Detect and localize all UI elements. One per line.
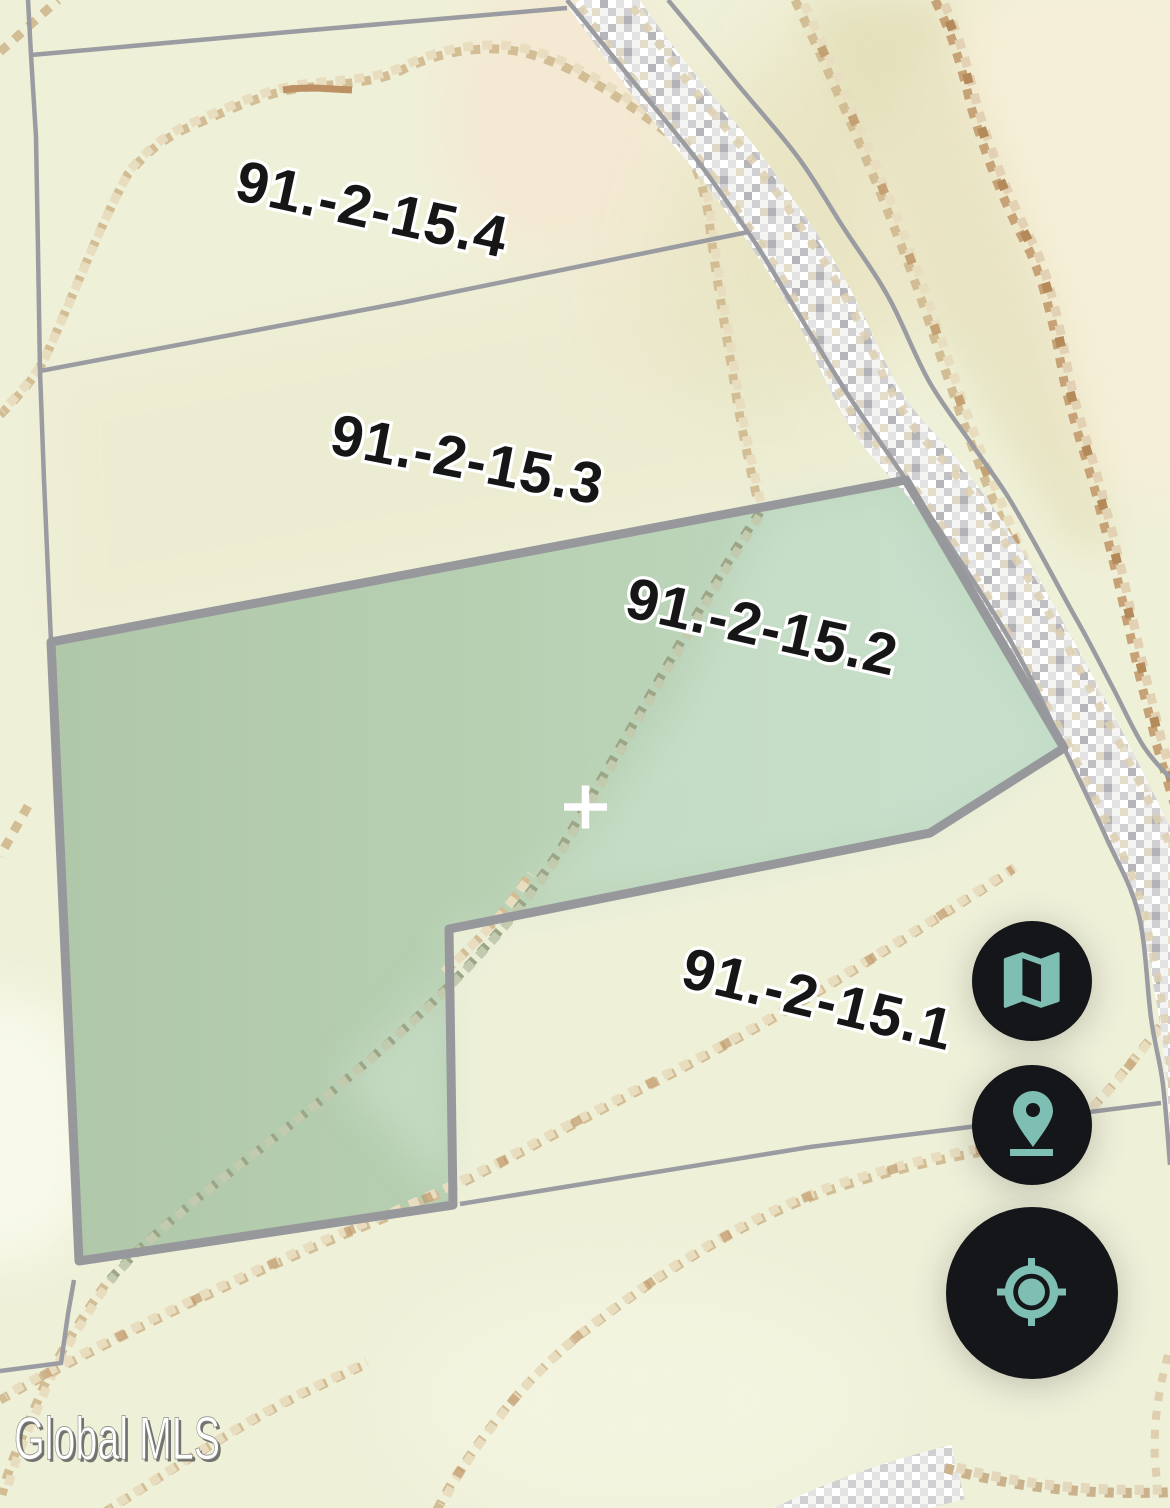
svg-text:Global MLS: Global MLS	[14, 1405, 220, 1472]
